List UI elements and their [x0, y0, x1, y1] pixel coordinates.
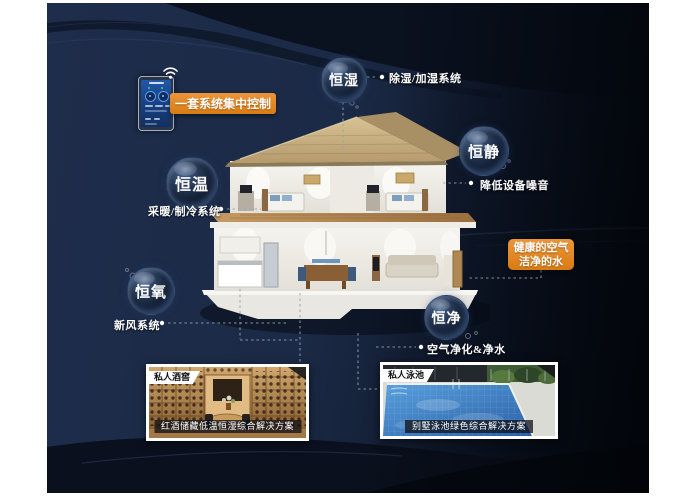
screen-text-row	[145, 118, 151, 120]
note-dehumidify-humidify-system: 除湿/加湿系统	[389, 70, 462, 86]
photo-wine-cellar: 私人酒窖 红酒储藏低温恒湿综合解决方案	[146, 364, 309, 441]
house-lower-floor	[214, 225, 462, 291]
bubble-label: 恒静	[468, 141, 500, 162]
health-callout: 健康的空气 洁净的水	[508, 239, 574, 270]
health-callout-line2: 洁净的水	[519, 255, 563, 269]
control-callout: 一套系统集中控制	[170, 93, 276, 114]
screen-text-row	[154, 118, 160, 120]
screen-text-row	[145, 123, 157, 125]
kitchen-area	[218, 237, 278, 287]
photo-caption-wine: 红酒储藏低温恒湿综合解决方案	[154, 420, 301, 433]
bubble-constant-purity: 恒净	[424, 295, 469, 340]
screen-text-row	[145, 110, 167, 112]
house-upper-floor	[230, 161, 446, 213]
bubble-label: 恒温	[175, 171, 209, 195]
screen-text-row	[145, 105, 153, 107]
dial-knob-icon	[158, 91, 169, 102]
second-floor-slab	[210, 213, 476, 228]
photo-caption-pool: 别墅泳池绿色综合解决方案	[405, 420, 533, 433]
bubble-constant-humidity: 恒湿	[321, 57, 367, 103]
status-led-icon	[148, 87, 150, 89]
control-callout-label: 一套系统集中控制	[175, 95, 271, 112]
bubble-label: 恒氧	[135, 281, 167, 302]
note-air-water-purification: 空气净化&净水	[427, 341, 506, 357]
bubble-label: 恒净	[432, 308, 462, 328]
note-heating-cooling-system: 采暖/制冷系统	[148, 203, 221, 219]
status-led-icon	[161, 87, 163, 89]
smart-home-poster: 一套系统集中控制 健康的空气 洁净的水 恒湿 恒静 恒温 恒氧 恒净 除湿/加湿…	[0, 0, 700, 497]
bubble-label: 恒湿	[329, 70, 359, 90]
bubble-constant-oxygen: 恒氧	[127, 267, 175, 315]
health-callout-line1: 健康的空气	[514, 241, 569, 255]
photo-tag-wine-cellar: 私人酒窖	[149, 371, 200, 384]
wifi-icon	[162, 65, 179, 80]
dial-knob-icon	[145, 91, 156, 102]
screen-title-bar	[149, 82, 164, 84]
photo-tag-pool: 私人泳池	[383, 369, 434, 382]
note-fresh-air-system: 新风系统	[114, 317, 160, 333]
porch-column	[453, 251, 462, 287]
screen-text-row	[155, 105, 163, 107]
bubble-constant-temperature: 恒温	[166, 157, 218, 209]
house-roof	[225, 112, 468, 167]
note-reduce-equipment-noise: 降低设备噪音	[480, 177, 549, 193]
smart-control-panel	[138, 76, 174, 131]
bubble-constant-quiet: 恒静	[459, 126, 509, 176]
control-panel-screen	[141, 80, 171, 127]
photo-private-pool: 私人泳池 别墅泳池绿色综合解决方案	[380, 362, 558, 439]
